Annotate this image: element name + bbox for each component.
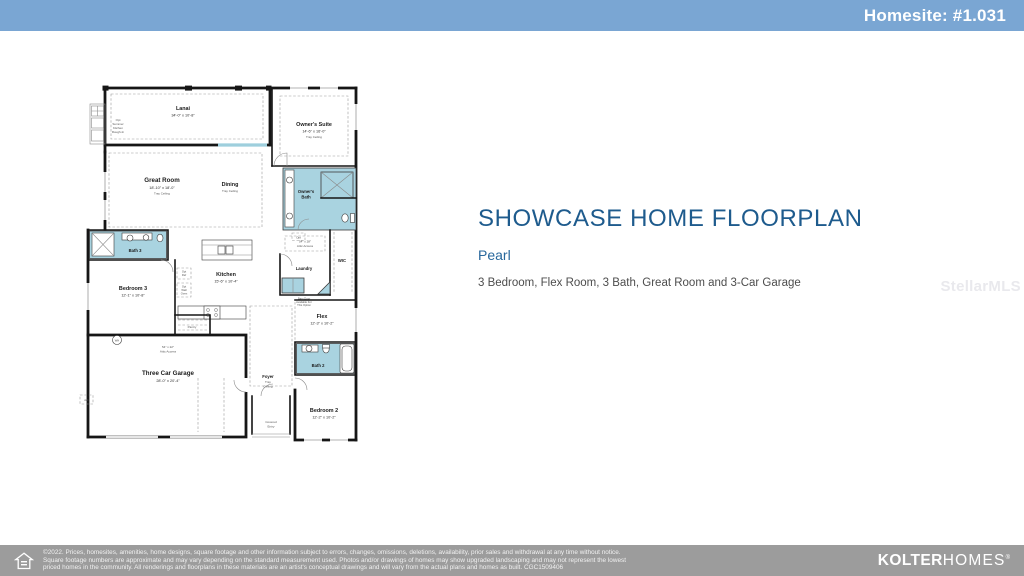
svg-text:Rough-In: Rough-In [112,130,125,134]
svg-text:Tray Ceiling: Tray Ceiling [306,135,322,139]
lanai-dims: 34'-0" x 10'-8" [171,114,195,118]
disclaimer-text: ©2022. Prices, homesites, amenities, hom… [43,549,869,571]
laundry-label: Laundry [296,266,313,271]
owners-suite-label: Owner's Suite [296,122,332,128]
svg-text:Bath: Bath [301,195,311,200]
wic-label: WIC [338,258,346,263]
kolter-homes-logo: KOLTERHOMES® [878,552,1010,570]
equal-housing-icon [14,551,34,571]
listing-image: Homesite: #1.031 SHOWCASE HOME FLOORPLAN… [0,0,1024,576]
svg-text:Opt: Opt [182,285,187,289]
plan-description: 3 Bedroom, Flex Room, 3 Bath, Great Room… [478,277,801,289]
svg-text:Attic Access: Attic Access [297,244,314,248]
owners-bath-label: Owner's [298,189,315,194]
bath3-label: Bath 3 [129,248,142,253]
foyer-label: Foyer [262,374,274,379]
covered-entry-label: Covered [265,420,277,424]
room-owners-suite: Owner's Suite 14'-6" x 16'-0" Tray Ceili… [272,88,356,440]
great-room-label: Great Room [144,177,180,184]
svg-text:Tray Ceiling: Tray Ceiling [154,192,170,196]
svg-text:Entry: Entry [267,425,275,429]
svg-text:18'-10" x 18'-0": 18'-10" x 18'-0" [149,186,175,190]
svg-text:28'-0" x 20'-4": 28'-0" x 20'-4" [156,379,180,383]
svg-text:14'-6" x 16'-0": 14'-6" x 16'-0" [302,130,326,134]
svg-text:12'-2" x 10'-2": 12'-2" x 10'-2" [312,416,336,420]
svg-text:Oven: Oven [181,292,188,296]
room-bedroom2: Bedroom 2 12'-2" x 10'-2" [295,378,356,440]
room-bath2: Bath 2 [295,342,356,375]
room-lanai: Lanai 34'-0" x 10'-8" [103,86,272,152]
water-heater-label: WH [115,338,120,342]
disclaimer-line3: priced homes in the community. All rende… [43,564,869,571]
svg-text:A/C: A/C [84,398,89,402]
page-title: SHOWCASE HOME FLOORPLAN [478,205,863,233]
room-foyer: Foyer Tray Ceiling [250,306,292,396]
footer-bar: ©2022. Prices, homesites, amenities, hom… [0,545,1024,576]
kitchen-label: Kitchen [216,272,236,278]
room-covered-entry: Covered Entry [252,396,290,437]
bath2-label: Bath 2 [312,363,325,368]
room-garage: WH 54" x 22" Attic Access Three Car Gara… [88,335,246,438]
room-owners-bath: Owner's Bath Opt [283,168,356,241]
bedroom3-label: Bedroom 3 [119,286,147,292]
svg-text:Attic Access: Attic Access [160,349,177,353]
room-dining: Dining Tray Ceiling [222,182,239,193]
header-bar: Homesite: #1.031 [0,0,1024,31]
floorplan-image: Lanai 34'-0" x 10'-8" Opt Summer Kitchen… [78,78,370,450]
svg-text:Opt: Opt [182,270,187,274]
disclaimer-line1: ©2022. Prices, homesites, amenities, hom… [43,549,869,556]
svg-text:Ref: Ref [182,273,186,277]
room-wic: WIC [330,230,352,295]
garage-label: Three Car Garage [142,370,194,377]
bedroom2-label: Bedroom 2 [310,408,338,414]
room-bedroom3: Bedroom 3 12'-1" x 10'-8" [88,260,175,335]
room-great-room: Great Room 18'-10" x 18'-0" Tray Ceiling [105,152,262,230]
ac-unit: A/C [80,395,93,404]
svg-text:Wall: Wall [181,288,187,292]
homesite-label: Homesite: #1.031 [864,6,1006,26]
svg-text:12'-1" x 10'-8": 12'-1" x 10'-8" [121,294,145,298]
lanai-label: Lanai [176,106,191,112]
disclaimer-line2: Square footage numbers are approximate a… [43,557,869,564]
dining-label: Dining [222,182,239,188]
opt-summer-kitchen: Opt Summer Kitchen Rough-In [90,104,125,144]
room-laundry: Laundry [280,254,330,295]
barn-door-note: Barn Door Available For This Option [296,297,312,308]
flex-label: Flex [317,314,328,320]
svg-text:This Option: This Option [297,303,311,307]
room-kitchen: Kitchen 15'-6" x 10'-4" Opt Ref Opt Wall… [177,240,252,319]
svg-text:Tray Ceiling: Tray Ceiling [222,189,238,193]
pantry-label: Pantry [188,325,197,329]
plan-name: Pearl [478,247,511,263]
room-bath3: Bath 3 [88,230,168,437]
watermark: StellarMLS [940,278,1021,295]
svg-text:15'-6" x 10'-4": 15'-6" x 10'-4" [214,280,238,284]
svg-text:12'-3" x 10'-2": 12'-3" x 10'-2" [310,322,334,326]
